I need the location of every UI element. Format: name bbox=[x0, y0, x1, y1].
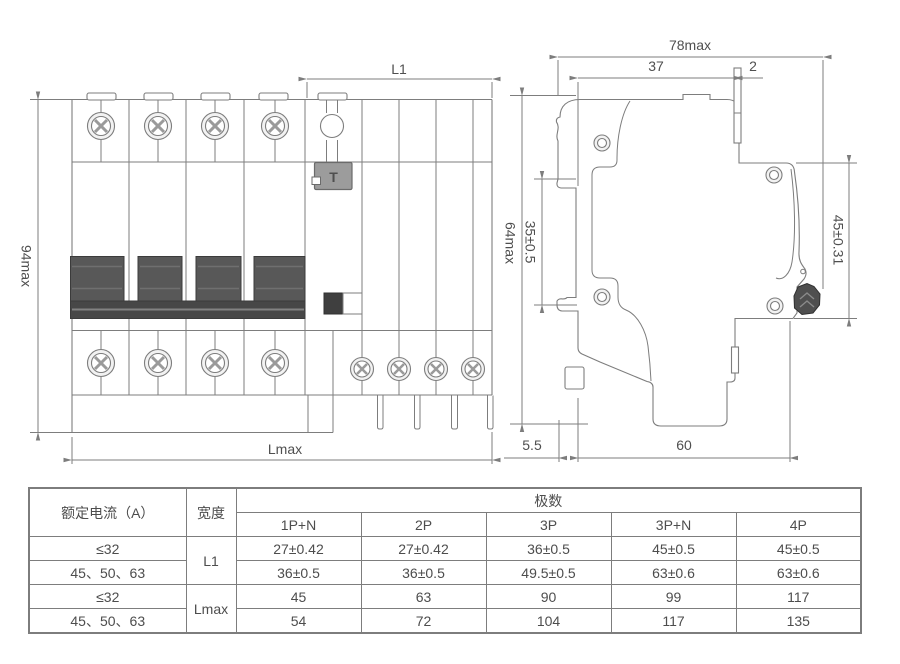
cell-value: 36±0.5 bbox=[486, 537, 611, 561]
cell-current: 45、50、63 bbox=[29, 609, 186, 634]
cell-value: 90 bbox=[486, 585, 611, 609]
cell-value: 45 bbox=[236, 585, 361, 609]
dim-5-5: 5.5 bbox=[522, 437, 542, 453]
terminal-screws-top bbox=[88, 113, 289, 140]
terminal-screws-bottom bbox=[88, 350, 485, 381]
header-pole: 3P+N bbox=[611, 513, 736, 537]
table-row: 45、50、63 36±0.5 36±0.5 49.5±0.5 63±0.6 6… bbox=[29, 561, 861, 585]
cell-value: 117 bbox=[611, 609, 736, 634]
cell-current: ≤32 bbox=[29, 585, 186, 609]
dim-94max: 94max bbox=[18, 245, 34, 287]
side-toggle-knob bbox=[794, 284, 820, 315]
toggle-handles bbox=[71, 257, 306, 319]
cell-value: 45±0.5 bbox=[611, 537, 736, 561]
header-rated-current: 额定电流（A） bbox=[29, 488, 186, 537]
cell-value: 63±0.6 bbox=[736, 561, 861, 585]
cell-width-l1: L1 bbox=[186, 537, 236, 585]
cell-current: 45、50、63 bbox=[29, 561, 186, 585]
cell-current: ≤32 bbox=[29, 537, 186, 561]
front-view: T 94max bbox=[18, 61, 493, 464]
cell-value: 49.5±0.5 bbox=[486, 561, 611, 585]
dimension-drawing: T 94max bbox=[0, 0, 900, 475]
header-poles-group: 极数 bbox=[236, 488, 861, 513]
dim-lmax: Lmax bbox=[268, 441, 302, 457]
dim-2: 2 bbox=[749, 58, 757, 74]
cell-value: 72 bbox=[361, 609, 486, 634]
dim-64max: 64max bbox=[502, 222, 518, 264]
dim-l1: L1 bbox=[391, 61, 407, 77]
table-row: 额定电流（A） 宽度 极数 bbox=[29, 488, 861, 513]
cell-value: 36±0.5 bbox=[361, 561, 486, 585]
test-button: T bbox=[312, 163, 352, 190]
dimension-table: 额定电流（A） 宽度 极数 1P+N 2P 3P 3P+N 4P ≤32 L1 … bbox=[28, 487, 862, 634]
din-clip-plate bbox=[734, 68, 741, 143]
cell-value: 27±0.42 bbox=[361, 537, 486, 561]
breaker-dimension-sheet: T 94max bbox=[0, 0, 900, 664]
cell-value: 54 bbox=[236, 609, 361, 634]
header-pole: 1P+N bbox=[236, 513, 361, 537]
cell-value: 63 bbox=[361, 585, 486, 609]
table-row: 45、50、63 54 72 104 117 135 bbox=[29, 609, 861, 634]
side-view: 78max 37 2 64max 35±0.5 45±0.31 5.5 bbox=[502, 37, 857, 462]
bottom-pins bbox=[378, 396, 494, 430]
reset-button bbox=[324, 293, 362, 314]
cell-value: 45±0.5 bbox=[736, 537, 861, 561]
side-slot bbox=[732, 347, 739, 373]
cell-value: 117 bbox=[736, 585, 861, 609]
dim-35: 35±0.5 bbox=[522, 221, 538, 264]
header-width: 宽度 bbox=[186, 488, 236, 537]
side-view-dimensions: 78max 37 2 64max 35±0.5 45±0.31 5.5 bbox=[502, 37, 857, 462]
cell-value: 99 bbox=[611, 585, 736, 609]
table-row: ≤32 L1 27±0.42 27±0.42 36±0.5 45±0.5 45±… bbox=[29, 537, 861, 561]
cell-value: 36±0.5 bbox=[236, 561, 361, 585]
rivet-bosses bbox=[594, 135, 783, 314]
table-row: ≤32 Lmax 45 63 90 99 117 bbox=[29, 585, 861, 609]
cell-value: 104 bbox=[486, 609, 611, 634]
pivot-dot bbox=[801, 269, 806, 274]
cell-value: 27±0.42 bbox=[236, 537, 361, 561]
cell-value: 135 bbox=[736, 609, 861, 634]
dim-37: 37 bbox=[648, 58, 664, 74]
indicator-window bbox=[321, 115, 344, 138]
header-pole: 3P bbox=[486, 513, 611, 537]
rail-clip bbox=[565, 367, 584, 389]
dim-45: 45±0.31 bbox=[830, 215, 846, 266]
header-pole: 2P bbox=[361, 513, 486, 537]
test-button-label: T bbox=[329, 169, 338, 185]
header-pole: 4P bbox=[736, 513, 861, 537]
dim-60: 60 bbox=[676, 437, 692, 453]
dim-78max: 78max bbox=[669, 37, 711, 53]
cell-width-lmax: Lmax bbox=[186, 585, 236, 634]
cell-value: 63±0.6 bbox=[611, 561, 736, 585]
